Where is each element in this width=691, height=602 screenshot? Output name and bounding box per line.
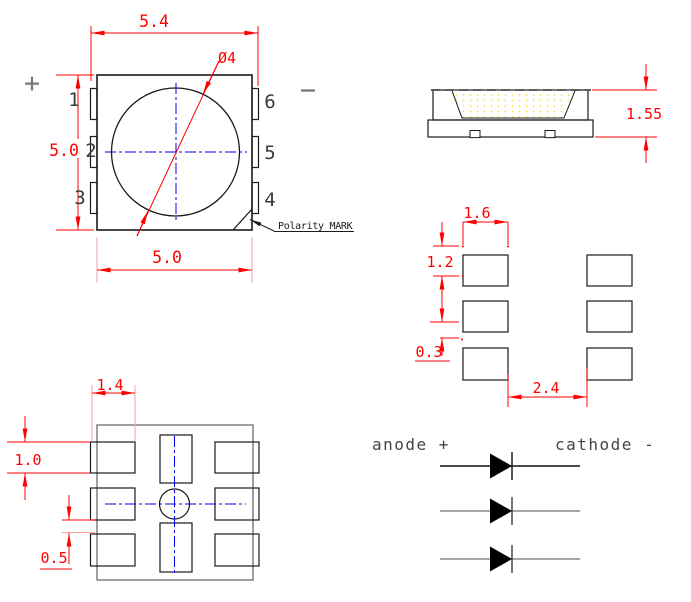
leadframe-base (428, 120, 593, 137)
pin-label-4: 4 (264, 189, 275, 211)
side-view: 1.55 (428, 64, 662, 163)
polarity-mark-label: Polarity MARK (278, 221, 353, 232)
dim-lens-diameter: Ø4 (137, 49, 236, 236)
bottom-view: 1.4 1.0 0.5 (7, 376, 259, 580)
dim-pad-width: 1.6 (462, 204, 509, 248)
encapsulant-fill (452, 91, 575, 118)
dim-bottom-pad-height: 1.0 (7, 416, 90, 500)
dim-label-0-3: 0.3 (415, 343, 442, 361)
diode-symbol-2 (440, 497, 580, 525)
polarity-callout: Polarity MARK (250, 220, 354, 233)
dim-label-5-0-bottom: 5.0 (152, 248, 182, 267)
dim-label-1-6: 1.6 (463, 204, 490, 222)
dim-label-diameter: Ø4 (218, 49, 236, 67)
dim-label-1-4: 1.4 (96, 376, 123, 394)
dim-package-height: 1.55 (592, 64, 662, 163)
polarity-chamfer (233, 209, 252, 230)
dim-label-0-5: 0.5 (40, 549, 67, 567)
anode-label: anode + (372, 435, 450, 454)
minus-symbol: − (300, 75, 316, 106)
dim-bottom-width: 5.0 (97, 237, 252, 283)
base-notch-left (470, 131, 480, 138)
diode-symbol-3 (440, 545, 580, 573)
dim-label-1-55: 1.55 (626, 105, 662, 123)
circuit-diagram: anode + cathode - (372, 435, 655, 573)
dim-pad-span: 2.4 (508, 368, 587, 407)
cathode-label: cathode - (555, 435, 655, 454)
drawing-svg: 5.4 5.0 5.0 Ø4 + − 1 2 3 (0, 0, 691, 602)
dim-pad-gap: 0.3 (415, 298, 463, 361)
top-view: 5.4 5.0 5.0 Ø4 + − 1 2 3 (24, 12, 354, 283)
pin-label-6: 6 (264, 91, 275, 113)
pin-label-5: 5 (264, 142, 275, 164)
pad-layout-view: 1.6 1.2 0.3 2.4 (415, 204, 632, 407)
base-notch-right (545, 131, 555, 138)
dim-pad-height: 1.2 (426, 222, 464, 298)
dim-bottom-pad-gap: 0.5 (40, 495, 95, 569)
dim-label-5-4: 5.4 (139, 12, 169, 31)
diode-symbol-1 (440, 452, 580, 480)
dim-label-1-2: 1.2 (426, 253, 453, 271)
dim-label-1-0: 1.0 (14, 451, 41, 469)
led-datasheet-drawing: 5.4 5.0 5.0 Ø4 + − 1 2 3 (0, 0, 691, 602)
plus-symbol: + (24, 68, 40, 99)
pin-label-2: 2 (85, 140, 96, 162)
dim-label-5-0-left: 5.0 (49, 141, 79, 160)
package-pins (91, 89, 259, 214)
pin-label-3: 3 (74, 187, 85, 209)
dim-label-2-4: 2.4 (532, 379, 559, 397)
pin-label-1: 1 (68, 89, 79, 111)
solder-pads (463, 255, 632, 380)
